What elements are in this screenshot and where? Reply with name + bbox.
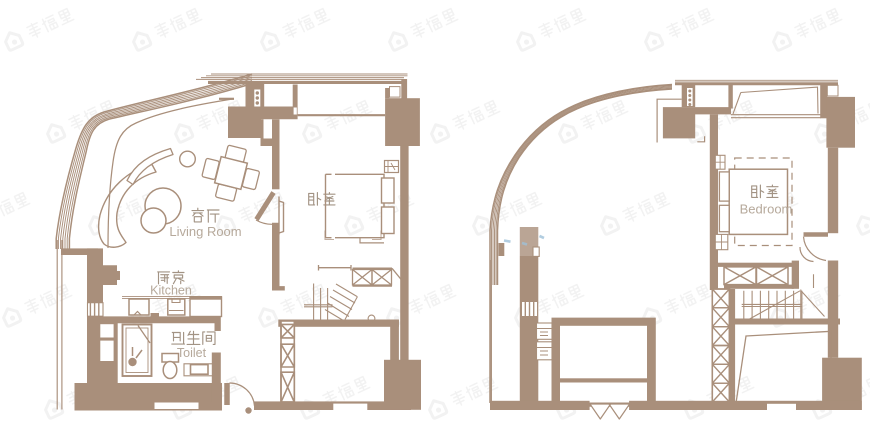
svg-text:Living Room: Living Room (169, 224, 241, 239)
svg-text:Toilet: Toilet (177, 346, 207, 360)
svg-text:Bedroom: Bedroom (740, 202, 793, 217)
svg-text:Kitchen: Kitchen (150, 284, 192, 298)
